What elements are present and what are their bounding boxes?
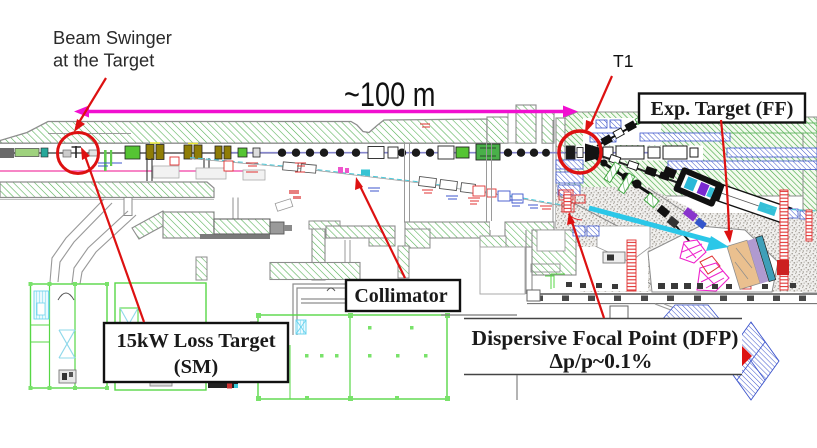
svg-text:(SM): (SM)	[174, 356, 218, 378]
svg-text:at the Target: at the Target	[53, 50, 154, 71]
svg-text:~100 m: ~100 m	[344, 75, 435, 114]
svg-text:15kW Loss Target: 15kW Loss Target	[116, 330, 275, 352]
svg-text:T1: T1	[613, 51, 633, 71]
svg-text:Dispersive Focal Point (DFP): Dispersive Focal Point (DFP)	[472, 326, 739, 350]
svg-text:Exp. Target (FF): Exp. Target (FF)	[651, 98, 794, 120]
svg-text:Beam Swinger: Beam Swinger	[53, 27, 172, 48]
svg-text:Collimator: Collimator	[354, 285, 447, 307]
svg-text:Δp/p~0.1%: Δp/p~0.1%	[550, 349, 653, 373]
